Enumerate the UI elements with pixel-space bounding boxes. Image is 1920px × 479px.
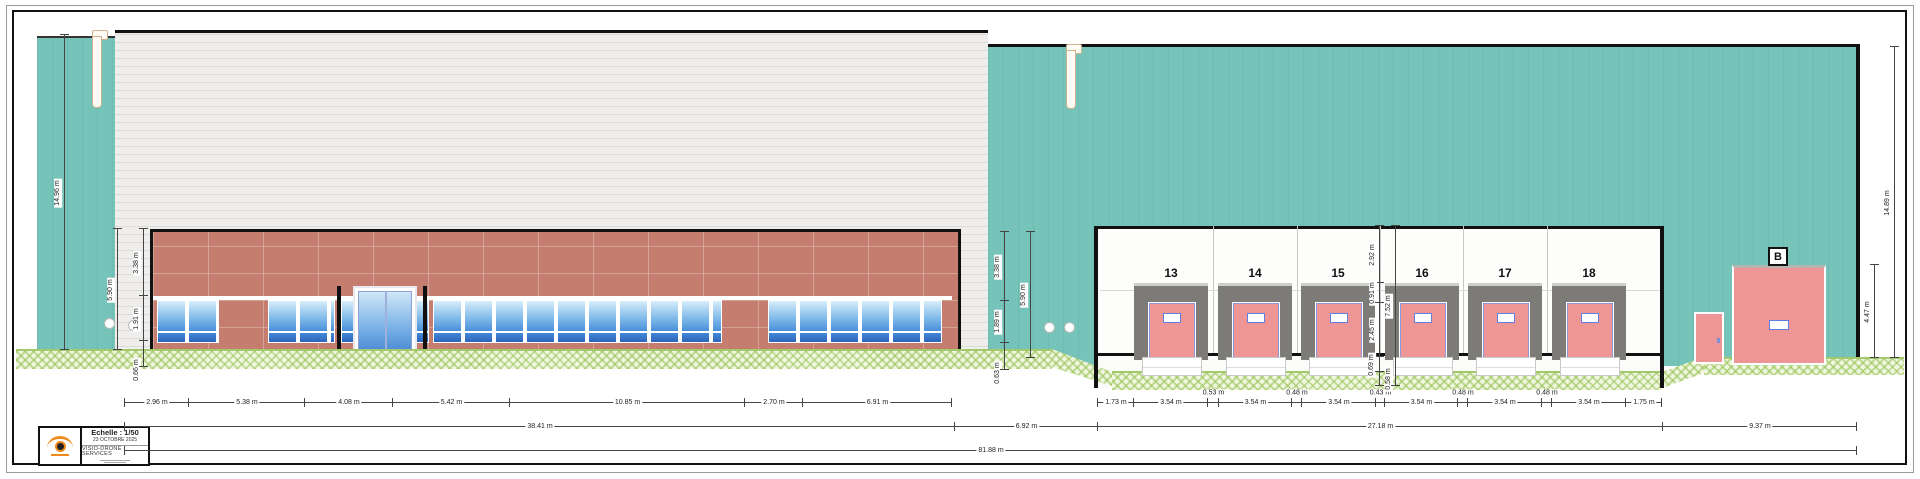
dimension-label: 0.63 m	[994, 360, 1002, 385]
dimension-label: 0.48 m	[1534, 389, 1559, 397]
dimension-segment-row1-left: 10.85 m	[510, 402, 745, 403]
dimension-label: 7.52 m	[1385, 293, 1393, 318]
dimension-segment-row1-left: 2.70 m	[745, 402, 803, 403]
dimension-segment-vertical: 2.92 m	[1379, 226, 1380, 283]
dimension-label: 1.75 m	[1631, 399, 1656, 407]
dimension-segment-row3: 81.88 m	[125, 450, 1857, 451]
dimension-segment-vertical: 1.89 m	[1004, 301, 1005, 343]
dimension-label: 4.47 m	[1864, 299, 1872, 324]
dimension-segment-vertical: 5.90 m	[117, 229, 118, 350]
company-name: VISIO-DRONE SERVICES	[82, 445, 148, 458]
drawing-date: 23 OCTOBRE 2025	[93, 438, 137, 443]
elevation-drawing-page: 131415161718 B Echelle : 1/50 23 OCTOBRE…	[0, 0, 1920, 479]
dimension-label: 3.54 m	[1158, 399, 1183, 407]
logo-wordmark-bar	[51, 454, 69, 456]
dimension-segment-row1-right: 3.54 m	[1219, 402, 1292, 403]
address-line	[100, 460, 130, 461]
dimension-segment-row1-right: 3.54 m	[1302, 402, 1376, 403]
dimension-label: 3.38 m	[994, 254, 1002, 279]
dimension-label: 1.73 m	[1103, 399, 1128, 407]
dimension-segment-row1-right: 3.54 m	[1552, 402, 1626, 403]
dimension-segment-vertical: 0.63 m	[1004, 343, 1005, 370]
dimension-label: 6.92 m	[1014, 423, 1039, 431]
dimension-segment-row1-left: 4.08 m	[305, 402, 393, 403]
dimension-label: 0.58 m	[1385, 366, 1393, 391]
dimension-label: 81.88 m	[976, 447, 1005, 455]
dimension-label: 2.45 m	[1369, 317, 1377, 342]
dimension-segment-vertical: 2.45 m	[1379, 303, 1380, 357]
dimension-label: 5.38 m	[234, 399, 259, 407]
dimension-segment-row1-left: 6.91 m	[803, 402, 952, 403]
dimension-segment-vertical: 0.91 m	[1379, 283, 1380, 303]
dimension-segment-vertical: 3.38 m	[1004, 232, 1005, 301]
dimension-segment-vertical: 0.58 m	[1379, 372, 1380, 386]
dimension-segment-row1-left: 5.42 m	[393, 402, 510, 403]
dimension-label: 38.41 m	[525, 423, 554, 431]
dimension-segment-vertical: 0.66 m	[143, 341, 144, 367]
dimension-label: 0.48 m	[1450, 389, 1475, 397]
dimension-label: 1.91 m	[133, 306, 141, 331]
dimension-segment-row1-right: 3.54 m	[1134, 402, 1208, 403]
dimension-label: 27.18 m	[1366, 423, 1395, 431]
title-block-text: Echelle : 1/50 23 OCTOBRE 2025 VISIO-DRO…	[82, 428, 148, 464]
sheet-inner-border	[12, 10, 1907, 465]
dimension-label: 2.92 m	[1369, 242, 1377, 267]
dimension-segment-row2: 27.18 m	[1098, 426, 1663, 427]
dimension-label: 3.38 m	[133, 250, 141, 275]
dimension-label: 0.69 m	[1368, 352, 1376, 377]
dimension-label: 5.90 m	[107, 277, 115, 302]
dimension-label: 0.53 m	[1201, 389, 1226, 397]
company-logo	[40, 428, 82, 464]
dimension-segment-vertical: 7.52 m	[1395, 226, 1396, 386]
dimension-segment-vertical: 1.91 m	[143, 296, 144, 341]
drawing-scale: Echelle : 1/50	[91, 429, 139, 437]
dimension-label: 5.90 m	[1020, 282, 1028, 307]
dimension-label: 9.37 m	[1747, 423, 1772, 431]
dimension-segment-row2: 6.92 m	[955, 426, 1098, 427]
dimension-label: 3.54 m	[1243, 399, 1268, 407]
camera-lens-icon	[55, 441, 66, 452]
dimension-label: 14.96 m	[54, 178, 62, 207]
dimension-label: 3.54 m	[1326, 399, 1351, 407]
dimension-label: 6.91 m	[865, 399, 890, 407]
dimension-segment-vertical: 5.90 m	[1030, 232, 1031, 358]
dimension-label: 0.66 m	[133, 357, 141, 382]
dimension-label: 4.08 m	[336, 399, 361, 407]
dimension-segment-row2: 38.41 m	[125, 426, 955, 427]
dimension-segment-row1-right: 1.73 m	[1098, 402, 1134, 403]
dimension-label: 14.89 m	[1884, 188, 1892, 217]
dimension-segment-row1-left: 2.96 m	[125, 402, 189, 403]
dimension-label: 2.70 m	[761, 399, 786, 407]
dimension-segment-vertical: 3.38 m	[143, 229, 144, 296]
dimension-segment-row1-right: 1.75 m	[1626, 402, 1662, 403]
dimension-label: 3.54 m	[1409, 399, 1434, 407]
address-line	[104, 462, 126, 463]
title-block: Echelle : 1/50 23 OCTOBRE 2025 VISIO-DRO…	[38, 426, 150, 466]
dimension-segment-row2: 9.37 m	[1663, 426, 1857, 427]
dimension-segment-vertical: 14.89 m	[1894, 47, 1895, 358]
dimension-segment-vertical: 14.96 m	[64, 35, 65, 350]
dimension-segment-row1-right: 3.54 m	[1468, 402, 1542, 403]
dimension-label: 3.54 m	[1492, 399, 1517, 407]
dimension-segment-vertical: 0.69 m	[1379, 357, 1380, 372]
dimension-label: 3.54 m	[1576, 399, 1601, 407]
dimension-segment-row1-left: 5.38 m	[189, 402, 305, 403]
dimension-label: 1.89 m	[994, 309, 1002, 334]
dimension-label: 2.96 m	[144, 399, 169, 407]
dimension-segment-row1-right: 3.54 m	[1385, 402, 1458, 403]
dimension-segment-vertical: 4.47 m	[1874, 265, 1875, 358]
dimension-label: 10.85 m	[613, 399, 642, 407]
dimension-label: 5.42 m	[439, 399, 464, 407]
dimension-label: 0.48 m	[1284, 389, 1309, 397]
